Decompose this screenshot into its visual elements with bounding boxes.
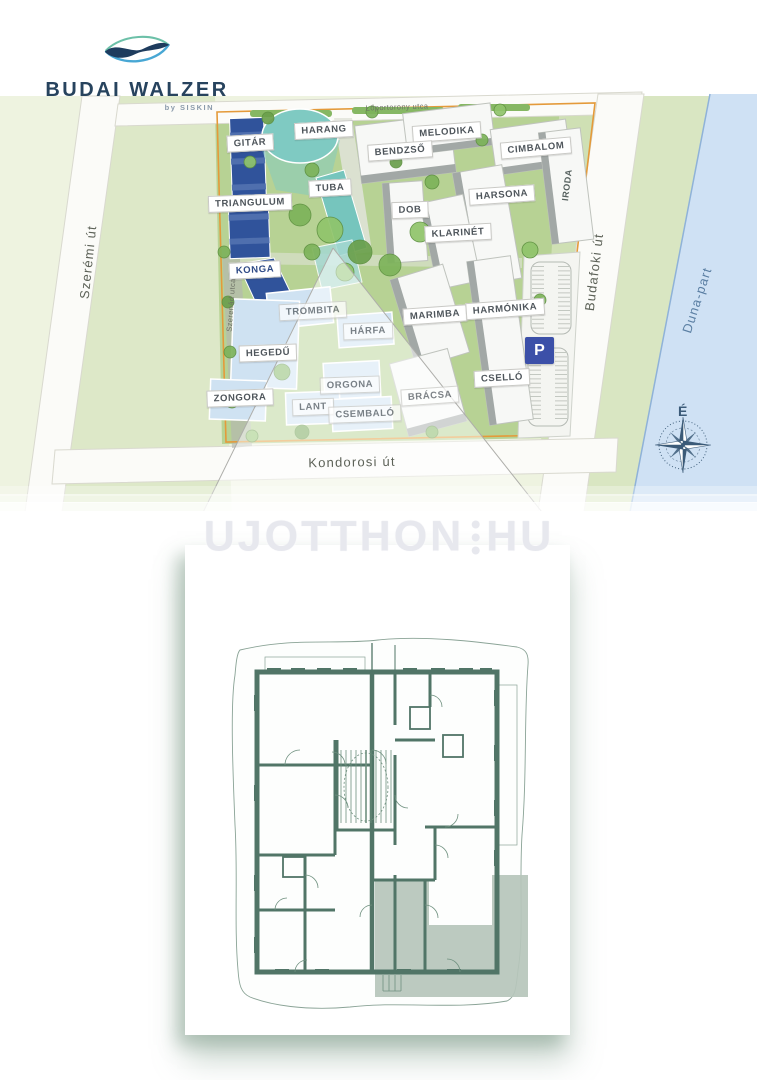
floor-plan-card <box>185 545 570 1035</box>
brand-subtitle: by SISKIN <box>42 103 232 112</box>
building-label-orgona: ORGONA <box>320 375 381 394</box>
watermark-dots-icon <box>471 520 479 554</box>
building-label-tuba: TUBA <box>308 178 352 197</box>
building-label-dob: DOB <box>391 201 428 219</box>
building-label-konga: KONGA <box>228 260 281 280</box>
building-label-csembalo: CSEMBALÓ <box>328 404 402 424</box>
listing-image: { "logo": { "title": "BUDAI WALZER", "su… <box>0 0 757 1080</box>
brand-logo: BUDAI WALZER by SISKIN <box>42 26 232 112</box>
building-label-csello: CSELLÓ <box>474 368 531 388</box>
building-label-triangulum: TRIANGULUM <box>208 193 292 213</box>
building-label-hegedu: HEGEDŰ <box>239 343 298 362</box>
brand-title: BUDAI WALZER <box>42 79 232 102</box>
floor-plan-drawing <box>185 545 570 1035</box>
building-label-harang: HARANG <box>294 120 354 140</box>
building-label-trombita: TROMBITA <box>278 301 347 322</box>
building-label-harfa: HÁRFA <box>343 322 393 341</box>
watermark: UJOTTHON HU <box>204 513 555 562</box>
building-label-gitar: GITÁR <box>226 133 273 152</box>
logo-wave-icon <box>98 26 176 72</box>
compass-north-letter: É <box>678 403 687 419</box>
building-label-klarinet: KLARINÉT <box>424 223 492 243</box>
watermark-right: HU <box>486 513 554 562</box>
watermark-left: UJOTTHON <box>204 513 465 562</box>
parking-badge: P <box>525 337 554 364</box>
street-label-kondorosi: Kondorosi út <box>308 454 396 471</box>
building-label-zongora: ZONGORA <box>206 388 273 407</box>
